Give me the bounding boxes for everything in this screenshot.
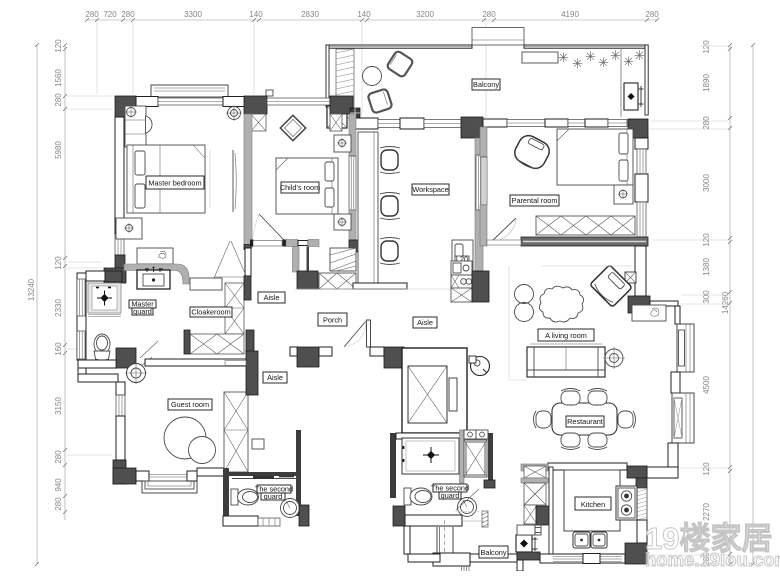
svg-text:✳: ✳	[558, 50, 569, 65]
svg-text:✳: ✳	[598, 55, 609, 70]
svg-text:A living room: A living room	[545, 331, 587, 340]
svg-text:3200: 3200	[416, 10, 434, 19]
svg-text:✳: ✳	[634, 48, 645, 63]
svg-text:✳: ✳	[610, 48, 621, 63]
svg-text:Aisle: Aisle	[267, 373, 283, 382]
svg-text:940: 940	[54, 478, 63, 492]
svg-text:Master bedroom: Master bedroom	[148, 179, 201, 188]
svg-text:140: 140	[249, 10, 263, 19]
svg-text:2330: 2330	[54, 299, 63, 317]
svg-text:2830: 2830	[301, 10, 319, 19]
svg-text:3000: 3000	[702, 174, 711, 192]
svg-text:160: 160	[54, 342, 63, 356]
svg-text:Restaurant: Restaurant	[567, 417, 603, 426]
svg-text:280: 280	[702, 116, 711, 130]
svg-text:1380: 1380	[702, 258, 711, 276]
svg-text:Cloakeroom: Cloakeroom	[191, 308, 230, 317]
svg-text:Child's room: Child's room	[280, 183, 320, 192]
svg-text:720: 720	[103, 10, 117, 19]
svg-text:3300: 3300	[184, 10, 202, 19]
svg-text:Balcony: Balcony	[473, 80, 499, 89]
svg-text:guard: guard	[133, 307, 152, 316]
svg-text:280: 280	[85, 10, 99, 19]
svg-text:Workspace: Workspace	[412, 185, 448, 194]
svg-text:280: 280	[482, 10, 496, 19]
svg-text:1890: 1890	[702, 74, 711, 92]
svg-text:home.19lou.com: home.19lou.com	[645, 549, 780, 570]
svg-text:Kitchen: Kitchen	[581, 500, 605, 509]
svg-text:280: 280	[645, 10, 659, 19]
svg-text:120: 120	[54, 39, 63, 53]
svg-text:280: 280	[54, 450, 63, 464]
svg-text:Balcony: Balcony	[481, 548, 507, 557]
svg-text:Aisle: Aisle	[417, 318, 433, 327]
svg-text:300: 300	[702, 290, 711, 304]
svg-text:120: 120	[702, 462, 711, 476]
svg-text:3150: 3150	[54, 397, 63, 415]
svg-text:Guest room: Guest room	[171, 400, 209, 409]
svg-text:4190: 4190	[561, 10, 579, 19]
svg-text:guard: guard	[264, 492, 283, 501]
svg-text:✳: ✳	[572, 56, 583, 71]
svg-text:280: 280	[121, 10, 135, 19]
svg-text:13240: 13240	[27, 278, 36, 301]
svg-text:2270: 2270	[702, 503, 711, 521]
svg-text:120: 120	[702, 40, 711, 54]
svg-text:guard: guard	[441, 491, 460, 500]
svg-text:Porch: Porch	[323, 316, 342, 325]
svg-text:5980: 5980	[54, 141, 63, 159]
svg-text:✳: ✳	[623, 54, 634, 69]
svg-text:✳: ✳	[585, 49, 596, 64]
svg-text:280: 280	[54, 93, 63, 107]
svg-text:140: 140	[357, 10, 371, 19]
svg-text:280: 280	[54, 497, 63, 511]
svg-text:Aisle: Aisle	[264, 293, 280, 302]
svg-text:4500: 4500	[702, 376, 711, 394]
svg-text:120: 120	[54, 256, 63, 270]
svg-text:Parental room: Parental room	[512, 196, 558, 205]
svg-text:1560: 1560	[54, 69, 63, 87]
